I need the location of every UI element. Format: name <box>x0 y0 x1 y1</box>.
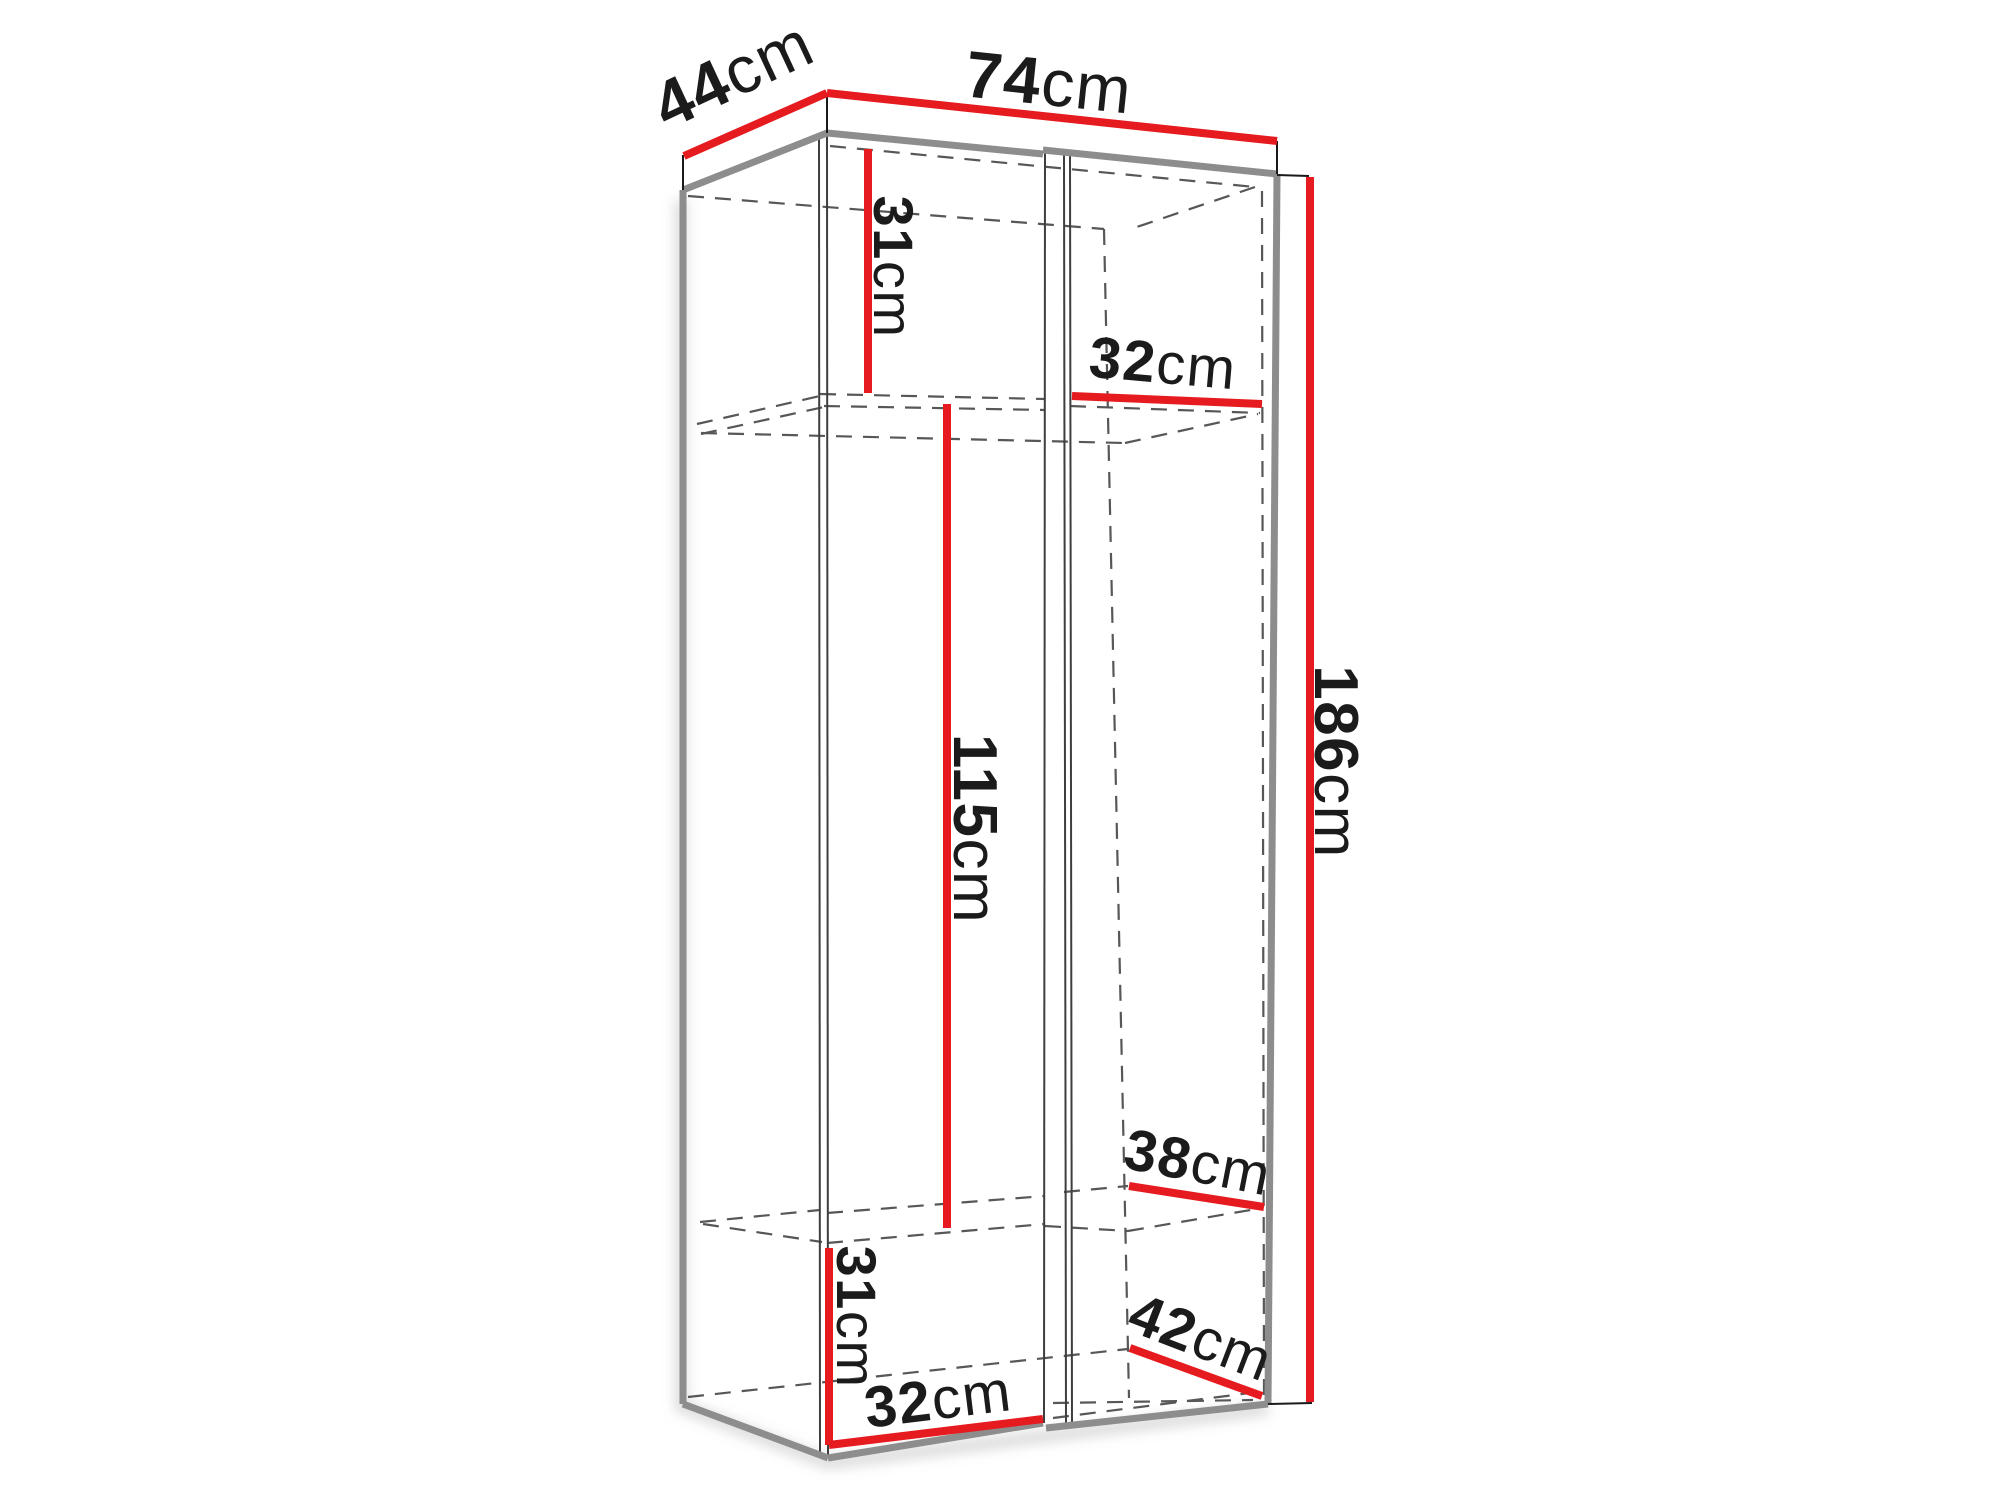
front-left-carcass-edge <box>819 137 820 1452</box>
wardrobe-dimension-diagram: 44cm 74cm 31cm 32cm 115cm 186cm 38cm 42c… <box>0 0 2000 1500</box>
back-right-edge <box>1104 229 1129 1398</box>
lower-shelf-side-diagonal-1 <box>700 1210 820 1222</box>
lower-shelf-front-right <box>1064 1186 1128 1192</box>
dimension-labels: 44cm 74cm 31cm 32cm 115cm 186cm 38cm 42c… <box>642 5 1370 1441</box>
inner-right-edge <box>1262 191 1264 1397</box>
upper-shelf-side-diagonal-2 <box>701 407 824 434</box>
bottom-left-edge <box>683 1404 828 1458</box>
extension-right-corner-horizontal <box>1277 175 1309 176</box>
upper-shelf-receding-right <box>1125 414 1258 443</box>
upper-shelf-front-right <box>1070 406 1260 413</box>
lower-shelf-back-right <box>1045 1226 1128 1231</box>
extension-bottom-right <box>1268 1403 1312 1404</box>
right-door-left-edge <box>1064 155 1066 1426</box>
dimension-label-31cm-upper: 31cm <box>862 196 925 339</box>
dimension-label-115cm: 115cm <box>940 734 1009 924</box>
dimension-label-186cm: 186cm <box>1301 665 1370 859</box>
middle-partition-edge <box>1070 155 1072 1427</box>
lower-shelf-front-top-left <box>827 1196 1045 1213</box>
front-right-edge <box>1268 174 1277 1404</box>
dimension-label-38cm: 38cm <box>1119 1116 1277 1208</box>
dimension-label-31cm-lower: 31cm <box>825 1246 888 1389</box>
ceiling-receding-edge <box>1128 187 1255 230</box>
lower-shelf-front-bottom-left <box>827 1224 1045 1243</box>
left-door-right-edge <box>1044 153 1045 1423</box>
dimension-label-32cm-upper: 32cm <box>1086 325 1239 403</box>
upper-shelf-front-top-left <box>820 394 1045 399</box>
upper-shelf-front-bottom-left <box>824 406 1045 410</box>
front-top-edge-left <box>827 133 1043 154</box>
diagram-canvas: 44cm 74cm 31cm 32cm 115cm 186cm 38cm 42c… <box>0 0 2000 1500</box>
dimension-label-44cm: 44cm <box>642 5 825 143</box>
lower-shelf-receding-right <box>1128 1208 1262 1231</box>
upper-shelf-side-diagonal-1 <box>697 396 820 424</box>
floor-bottom-right <box>1053 1400 1253 1403</box>
lower-shelf-side-diagonal-2 <box>703 1224 822 1242</box>
top-left-edge <box>683 133 827 190</box>
upper-shelf-back-edge <box>701 433 1125 443</box>
